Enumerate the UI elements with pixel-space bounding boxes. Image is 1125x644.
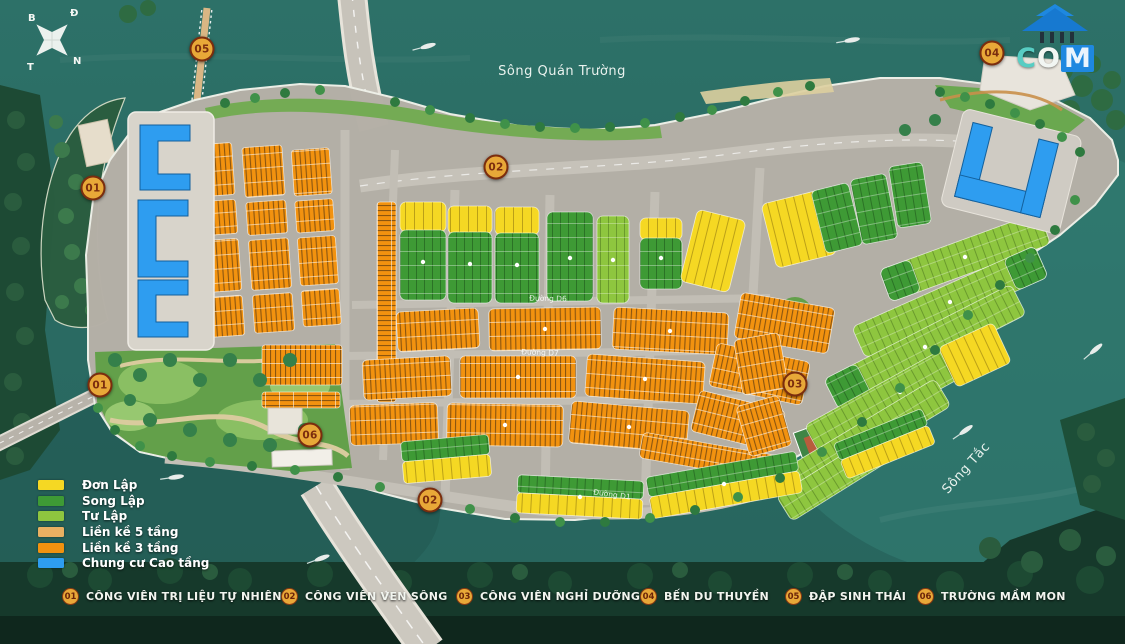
- compass-t: T: [27, 62, 34, 73]
- lot-block: [295, 199, 335, 234]
- lot-block: [242, 145, 285, 198]
- location-label: CÔNG VIÊN TRỊ LIỆU TỰ NHIÊN: [86, 590, 282, 603]
- location-item: 03 CÔNG VIÊN NGHỈ DƯỠNG: [456, 588, 640, 605]
- lot-block: [252, 293, 295, 334]
- logo-letter-m: M: [1061, 45, 1094, 72]
- location-badge: 02: [281, 588, 298, 605]
- lot-block: [396, 308, 480, 352]
- lot-block: [640, 238, 682, 289]
- lot-block: [640, 218, 682, 240]
- lot-block: [349, 402, 438, 445]
- color-legend: Đơn Lập Song Lập Tư Lập Liền kề 5 tầng L…: [38, 477, 209, 571]
- legend-item: Đơn Lập: [38, 477, 209, 493]
- legend-swatch: [38, 527, 64, 537]
- road-label: Đường D6: [529, 294, 567, 304]
- map-marker-01-north: 01: [81, 176, 106, 201]
- location-item: 02 CÔNG VIÊN VEN SÔNG: [281, 588, 448, 605]
- location-badge: 04: [640, 588, 657, 605]
- legend-swatch: [38, 496, 64, 506]
- master-plan-map: Sông Quán Trường Sông Tắc Đường D6 Đường…: [0, 0, 1125, 644]
- legend-item: Tư Lập: [38, 508, 209, 524]
- lot-block: [448, 206, 492, 234]
- logo-letter-c: C: [1016, 45, 1036, 72]
- legend-item: Liền kề 3 tầng: [38, 540, 209, 556]
- legend-item: Song Lập: [38, 493, 209, 509]
- logo-text: C O M: [1001, 45, 1109, 72]
- logo-letter-o: O: [1037, 45, 1060, 72]
- map-marker-06: 06: [298, 423, 323, 448]
- legend-item: Liền kề 5 tầng: [38, 524, 209, 540]
- location-item: 06 TRƯỜNG MẦM MON: [917, 588, 1066, 605]
- location-badge: 06: [917, 588, 934, 605]
- lot-block: [262, 345, 342, 385]
- location-label: CÔNG VIÊN VEN SÔNG: [305, 590, 448, 603]
- lot-block: [400, 202, 446, 232]
- map-marker-02-north: 02: [484, 155, 509, 180]
- map-marker-05: 05: [190, 37, 215, 62]
- legend-label: Song Lập: [82, 494, 145, 508]
- location-badge: 01: [62, 588, 79, 605]
- legend-swatch: [38, 480, 64, 490]
- location-label: CÔNG VIÊN NGHỈ DƯỠNG: [480, 590, 640, 603]
- lot-block: [262, 392, 340, 408]
- legend-swatch: [38, 511, 64, 521]
- lot-block: [733, 332, 788, 395]
- location-item: 05 ĐẬP SINH THÁI: [785, 588, 906, 605]
- road-label: Đường D7: [521, 347, 559, 357]
- location-label: BẾN DU THUYỀN: [664, 590, 769, 603]
- lot-block: [448, 232, 492, 303]
- map-marker-02-south: 02: [418, 488, 443, 513]
- legend-label: Tư Lập: [82, 509, 127, 523]
- legend-swatch: [38, 558, 64, 568]
- compass-b: B: [28, 13, 36, 24]
- lot-block: [362, 356, 452, 401]
- lot-block: [400, 230, 446, 300]
- river-label-top: Sông Quán Trường: [498, 64, 626, 79]
- lot-block: [495, 233, 539, 303]
- legend-label: Liền kề 3 tầng: [82, 541, 178, 555]
- location-label: ĐẬP SINH THÁI: [809, 590, 906, 603]
- legend-label: Chung cư Cao tầng: [82, 556, 209, 570]
- legend-item: Chung cư Cao tầng: [38, 555, 209, 571]
- compass-d: Đ: [70, 8, 78, 19]
- map-marker-03: 03: [783, 372, 808, 397]
- lot-block: [297, 235, 338, 286]
- location-item: 01 CÔNG VIÊN TRỊ LIỆU TỰ NHIÊN: [62, 588, 282, 605]
- lot-block: [291, 148, 332, 197]
- lot-block: [248, 238, 291, 291]
- lot-block: [246, 200, 288, 236]
- brand-logo: C O M: [1001, 4, 1109, 72]
- location-label: TRƯỜNG MẦM MON: [941, 590, 1066, 603]
- map-marker-01-south: 01: [88, 373, 113, 398]
- legend-label: Liền kề 5 tầng: [82, 525, 178, 539]
- pavilion-icon: [1018, 4, 1092, 44]
- lot-block: [495, 207, 539, 235]
- location-badge: 05: [785, 588, 802, 605]
- location-badge: 03: [456, 588, 473, 605]
- location-item: 04 BẾN DU THUYỀN: [640, 588, 769, 605]
- compass-n: N: [73, 56, 81, 67]
- lot-block: [301, 288, 341, 327]
- legend-swatch: [38, 543, 64, 553]
- legend-label: Đơn Lập: [82, 478, 137, 492]
